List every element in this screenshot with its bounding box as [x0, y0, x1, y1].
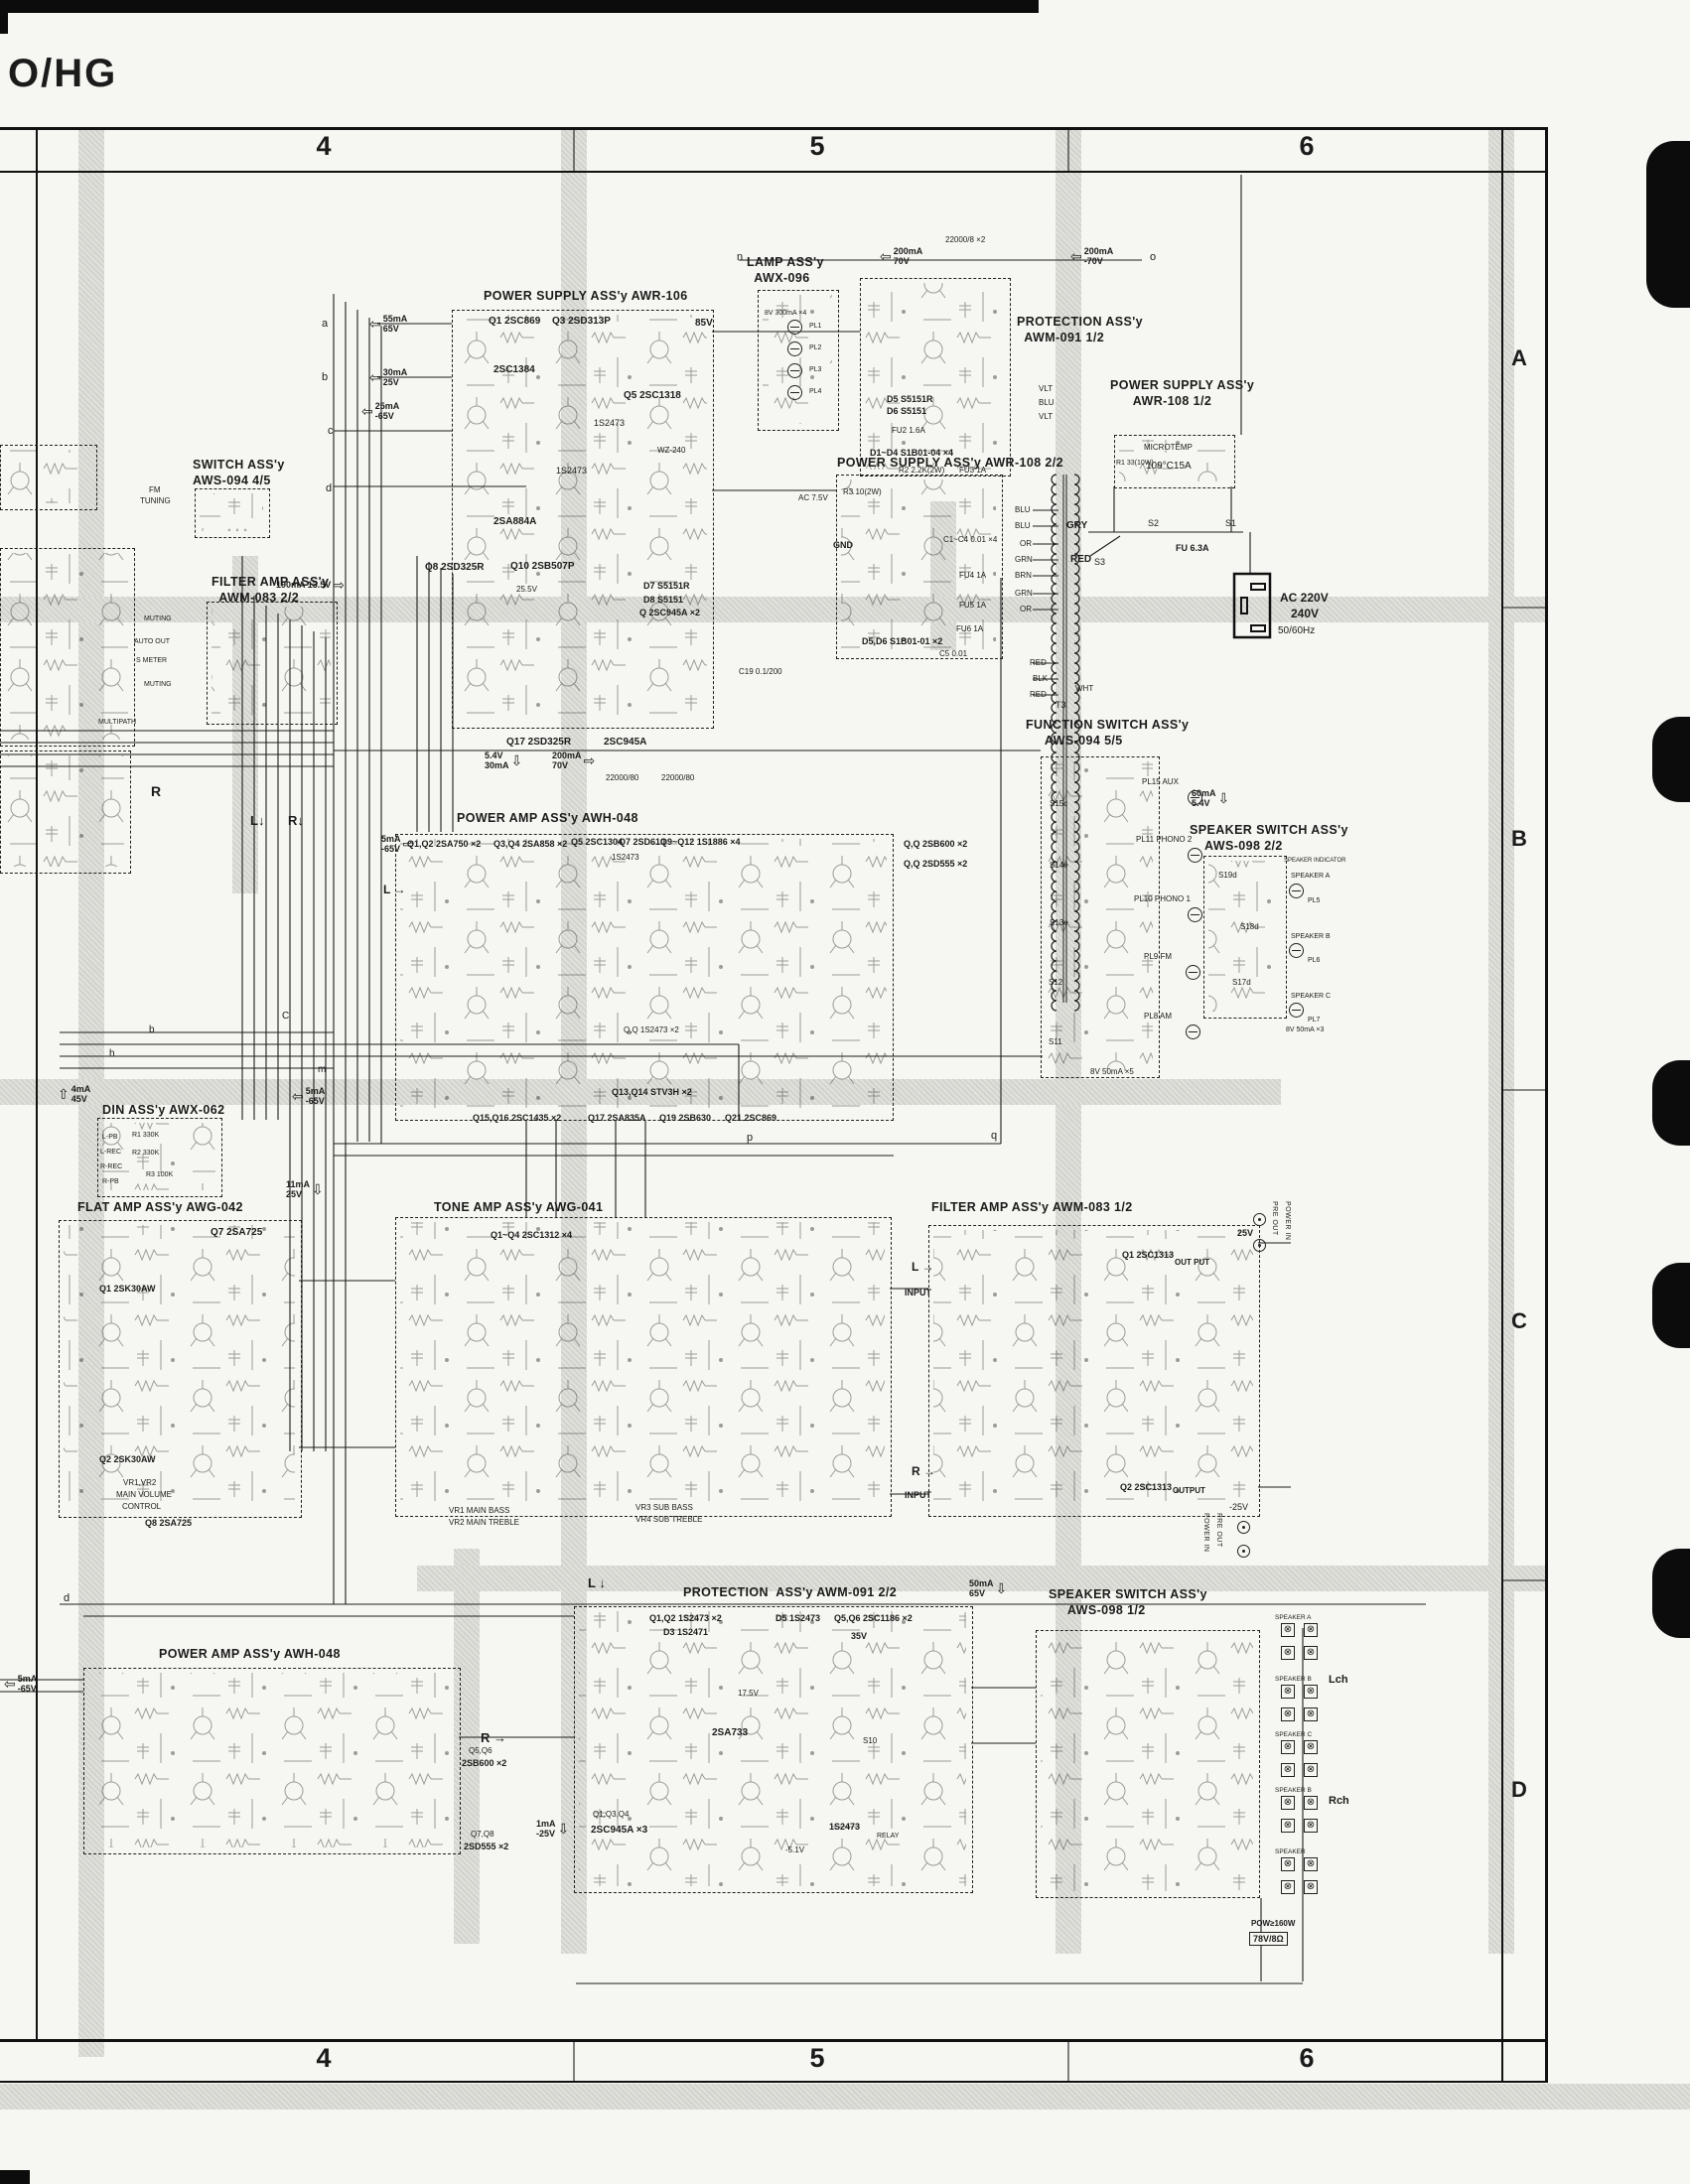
part-label: R3 10(2W) [843, 488, 882, 497]
part-label: FM [149, 486, 161, 495]
grid-column-label-top: 4 [316, 131, 331, 162]
part-label: L↓ [250, 814, 264, 828]
lamp-icon [787, 363, 802, 378]
assembly-block-tone [395, 1217, 892, 1517]
part-label: Q3,Q4 2SA858 ×2 [493, 840, 567, 850]
part-label: S12 [1049, 979, 1062, 988]
lamp-icon [1289, 884, 1304, 898]
lamp-label: PL15 AUX [1142, 778, 1179, 787]
part-label: Q1,Q2 2SA750 ×2 [407, 840, 481, 850]
speaker-terminal-group-label: SPEAKER B [1275, 1787, 1312, 1794]
hollow-arrow-icon: ⇦ [361, 404, 373, 418]
part-label: BLU [1015, 506, 1031, 515]
speaker-terminal-group-label: SPEAKER B [1275, 1676, 1312, 1683]
speaker-terminal-icon: ⊗ [1304, 1763, 1318, 1777]
part-label: 2SD555 ×2 [464, 1843, 508, 1852]
current-arrow: 5.4V30mA⇩ [485, 751, 522, 771]
part-label: Q15,Q16 2SC1435 ×2 [473, 1114, 561, 1124]
part-label: D6 S5151 [887, 407, 926, 417]
hollow-arrow-icon: ⇩ [511, 753, 523, 767]
part-label: S19d [1218, 872, 1237, 881]
assembly-block-prot-bot [574, 1606, 973, 1893]
hollow-arrow-icon: ⇧ [58, 1087, 70, 1101]
part-label: RELAY [877, 1833, 899, 1841]
lamp-icon [1188, 790, 1202, 805]
schematic-page: O/HG 445566ABCDPOWER [0, 0, 1690, 2184]
part-label: R2 2.2K(2W) [899, 467, 944, 476]
part-label: POW≥160W [1251, 1920, 1295, 1929]
part-label: MUTING [144, 615, 172, 623]
assembly-block-filt-l [207, 602, 338, 725]
frame-line [0, 127, 1547, 130]
current-arrow: ⇦55mA65V [369, 314, 407, 335]
grid-column-label-bottom: 5 [809, 2043, 824, 2074]
assembly-title-func: FUNCTION SWITCH ASS'y AWS-094 5/5 [1026, 717, 1189, 750]
part-label: 2SC1384 [493, 364, 535, 375]
part-label: Q,Q 1S2473 ×2 [624, 1026, 679, 1035]
part-label: 1S2473 [594, 419, 625, 429]
part-label: TUNING [140, 497, 171, 506]
part-label: 2SA733 [712, 1727, 748, 1738]
jack-label: POWER IN [1284, 1201, 1291, 1240]
lamp-label: PL9 FM [1144, 953, 1172, 962]
part-label: L → [912, 1261, 933, 1274]
speaker-terminal-icon: ⊗ [1281, 1740, 1295, 1754]
part-label: GND [833, 541, 853, 551]
speaker-terminal-icon: ⊗ [1304, 1740, 1318, 1754]
lamp-icon [1186, 1024, 1200, 1039]
current-arrow-text: 5mA-65V [18, 1674, 38, 1695]
jack-icon [1237, 1521, 1250, 1534]
part-label: BLU [1015, 522, 1031, 531]
part-label: 1S2473 [829, 1823, 860, 1833]
part-label: PL5 [1308, 897, 1320, 905]
part-label: Q13,Q14 STV3H ×2 [612, 1088, 692, 1098]
current-arrow-text: 50mA65V [969, 1578, 994, 1599]
part-label: S14e [1050, 862, 1068, 871]
lamp-label: PL10 PHONO 1 [1134, 895, 1191, 904]
part-label: D5 S5151R [887, 395, 933, 405]
assembly-title-pamp2: POWER AMP ASS'y AWH-048 [159, 1646, 341, 1662]
scan-edge-mark [0, 0, 1039, 13]
part-label: R3 100K [146, 1171, 173, 1179]
speaker-terminal-icon: ⊗ [1304, 1707, 1318, 1721]
part-label: R2 330K [132, 1150, 159, 1158]
part-label: INPUT [905, 1289, 931, 1298]
binding-tab [1646, 141, 1690, 308]
lamp-label: PL2 [809, 344, 821, 352]
hollow-arrow-icon: ⇦ [4, 1677, 16, 1691]
part-label: SPEAKER B [1291, 933, 1331, 941]
jack-icon [1237, 1545, 1250, 1558]
lamp-label: PL4 [809, 388, 821, 396]
part-label: Q8 2SD325R [425, 562, 484, 573]
part-label: 1S2473 [556, 467, 587, 477]
part-label: BRN [1015, 572, 1032, 581]
part-label: Q21 2SC869 [725, 1114, 776, 1124]
part-label: Q17 2SD325R [506, 737, 571, 748]
binding-tab [1652, 1060, 1690, 1146]
part-label: Q10 2SB507P [510, 561, 575, 572]
assembly-block-filt-r [928, 1225, 1260, 1517]
assembly-title-prot-top: PROTECTION ASS'y AWM-091 1/2 [1017, 314, 1143, 346]
assembly-title-spk-top: SPEAKER SWITCH ASS'y AWS-098 2/2 [1190, 822, 1348, 855]
part-label: PL7 [1308, 1017, 1320, 1024]
part-label: FU6 1A [956, 625, 983, 634]
part-label: FU5 1A [959, 602, 986, 611]
part-label: VR3 SUB BASS [635, 1504, 693, 1513]
part-label: Q1 2SC1313 [1122, 1251, 1174, 1261]
scan-edge-mark [0, 0, 8, 34]
assembly-title-pamp: POWER AMP ASS'y AWH-048 [457, 810, 638, 826]
part-label: C19 0.1/200 [739, 668, 782, 677]
part-label: Q8 2SA725 [145, 1519, 192, 1529]
hollow-arrow-icon: ⇨ [333, 578, 345, 592]
part-label: R [151, 784, 161, 799]
part-label: INPUT [905, 1491, 931, 1501]
part-label: C5 0.01 [939, 650, 967, 659]
lamp-icon [1188, 848, 1202, 863]
current-arrow-text: 25mA-65V [375, 401, 400, 422]
part-label: Q3 2SD313P [552, 316, 611, 327]
lamp-label: PL3 [809, 366, 821, 374]
part-label: Lch [1329, 1674, 1348, 1686]
part-label: Q1,Q2 1S2473 ×2 [649, 1614, 722, 1624]
frame-line [0, 171, 1547, 173]
part-label: 22000/8 ×2 [945, 236, 985, 245]
part-label: FU2 1.6A [892, 427, 925, 436]
assembly-title-prot-bot: PROTECTION ASS'y AWM-091 2/2 [683, 1584, 897, 1600]
part-label: R1 33(10W) [1116, 460, 1154, 468]
part-label: Q5 2SC1304 [571, 838, 623, 848]
speaker-terminal-icon: ⊗ [1281, 1685, 1295, 1699]
grid-column-label-top: 5 [809, 131, 824, 162]
part-label: BLU [1039, 399, 1055, 408]
current-arrow: 190mA 13.5V⇨ [276, 578, 345, 592]
lamp-label: PL1 [809, 323, 821, 331]
part-label: 8V 300mA ×4 [765, 310, 806, 318]
part-label: VR1 MAIN BASS [449, 1507, 509, 1516]
hollow-arrow-icon: ⇩ [558, 1822, 570, 1836]
part-label: S11 [1049, 1038, 1062, 1047]
assembly-title-awr106: POWER SUPPLY ASS'y AWR-106 [484, 288, 688, 304]
part-label: 17.5V [738, 1690, 759, 1699]
assembly-block-awr106 [452, 310, 714, 729]
assembly-title-sw094: SWITCH ASS'y AWS-094 4/5 [193, 457, 285, 489]
hollow-arrow-icon: ⇦ [880, 249, 892, 263]
part-label: m [318, 1064, 326, 1075]
part-label: VR4 SUB TREBLE [635, 1516, 702, 1525]
speaker-terminal-group-label: SPEAKER C [1275, 1731, 1312, 1738]
part-label: R-PB [102, 1178, 119, 1186]
part-label: RED [1030, 659, 1047, 668]
part-label: R → [481, 1731, 506, 1745]
jack-icon [1253, 1239, 1266, 1252]
current-arrow: ⇦25mA-65V [361, 401, 399, 422]
part-label: RED [1070, 554, 1091, 565]
part-label: 50/60Hz [1278, 625, 1315, 636]
part-label: OUTPUT [1173, 1487, 1205, 1496]
assembly-title-flat: FLAT AMP ASS'y AWG-042 [77, 1199, 243, 1215]
part-label: AUTO OUT [134, 638, 170, 646]
speaker-terminal-group-label: SPEAKER [1275, 1848, 1306, 1855]
part-label: CONTROL [122, 1503, 161, 1512]
part-label: MAIN VOLUME [116, 1491, 172, 1500]
ac-outlet-icon [1234, 574, 1270, 637]
part-label: D5 1S2473 [775, 1614, 820, 1624]
part-label: Q5,Q6 2SC1186 ×2 [834, 1614, 913, 1624]
jack-icon [1253, 1213, 1266, 1226]
part-label: R → [912, 1465, 935, 1478]
part-label: S2 [1148, 519, 1159, 529]
part-label: n [737, 251, 743, 263]
part-label: Rch [1329, 1795, 1349, 1807]
part-label: Q9~Q12 1S1886 ×4 [660, 838, 741, 848]
part-label: h [109, 1048, 115, 1059]
speaker-terminal-icon: ⊗ [1304, 1685, 1318, 1699]
part-label: 2SC945A ×3 [591, 1825, 647, 1836]
assembly-block-flat [59, 1220, 302, 1518]
part-label: MICROTEMP [1144, 444, 1193, 453]
part-label: PL6 [1308, 957, 1320, 965]
current-arrow-text: 200mA-70V [1084, 246, 1114, 267]
part-label: D3 1S2471 [663, 1628, 708, 1638]
part-label: S17d [1232, 979, 1251, 988]
current-arrow: 1mA-25V⇩ [536, 1819, 569, 1840]
part-label: FU4 1A [959, 572, 986, 581]
lamp-icon [787, 320, 802, 335]
assembly-block-prot-top [860, 278, 1011, 477]
jack-label: PRE OUT [1215, 1513, 1222, 1548]
grid-row-label: D [1511, 1777, 1527, 1803]
speaker-terminal-group-label: SPEAKER A [1275, 1614, 1312, 1621]
grid-row-label: A [1511, 345, 1527, 371]
hollow-arrow-icon: ⇩ [312, 1182, 324, 1196]
current-arrow-text: 190mA 13.5V [276, 580, 331, 590]
speaker-terminal-icon: ⊗ [1281, 1796, 1295, 1810]
part-label: AC 7.5V [798, 494, 828, 503]
hollow-arrow-icon: ⇩ [1218, 791, 1230, 805]
lamp-label: PL11 PHONO 2 [1136, 836, 1192, 845]
part-label: OR [1020, 606, 1032, 614]
part-label: FU3 1A [959, 467, 986, 476]
current-arrow: ⇦5mA-65V [292, 1086, 325, 1107]
binding-tab [1652, 1263, 1690, 1348]
part-label: d [64, 1592, 70, 1604]
speaker-terminal-icon: ⊗ [1281, 1646, 1295, 1660]
current-arrow-text: 200mA70V [552, 751, 582, 771]
part-label: T3 [1056, 701, 1066, 711]
part-label: -25V [1229, 1503, 1248, 1513]
lamp-icon [1289, 943, 1304, 958]
grid-row-label: B [1511, 826, 1527, 852]
part-label: b [149, 1024, 155, 1035]
jack-label: PRE OUT [1271, 1201, 1278, 1236]
part-label: S METER [136, 657, 167, 665]
part-label: S10 [863, 1737, 877, 1746]
part-label: p [747, 1132, 753, 1144]
part-label: Q7 2SD610 [619, 838, 665, 848]
current-arrow: 5mA-65V⇨ [381, 834, 414, 855]
current-arrow: ⇦5mA-65V [4, 1674, 37, 1695]
part-label: S18d [1240, 923, 1259, 932]
part-label: D7 S5151R [643, 582, 690, 592]
frame-line [36, 127, 38, 2041]
part-label: d [326, 482, 332, 494]
part-label: Q7 2SA725 [211, 1227, 262, 1238]
part-label: 2SB600 ×2 [462, 1759, 506, 1769]
hollow-arrow-icon: ⇨ [403, 837, 415, 851]
grid-column-label-top: 6 [1299, 131, 1314, 162]
lamp-icon [787, 385, 802, 400]
current-arrow-text: 5.4V30mA [485, 751, 509, 771]
hollow-arrow-icon: ⇩ [996, 1581, 1008, 1595]
part-label: R-REC [100, 1163, 122, 1171]
part-label: Q2 2SC1313 [1120, 1483, 1172, 1493]
speaker-terminal-icon: ⊗ [1304, 1646, 1318, 1660]
part-label: Q,Q 2SD555 ×2 [904, 860, 967, 870]
current-arrow: 11mA25V⇩ [286, 1179, 324, 1200]
assembly-title-tone: TONE AMP ASS'y AWG-041 [434, 1199, 603, 1215]
part-label: SPEAKER A [1291, 873, 1330, 881]
speaker-terminal-icon: ⊗ [1304, 1623, 1318, 1637]
lamp-label: PL8 AM [1144, 1013, 1172, 1022]
assembly-block-spk-bot [1036, 1630, 1260, 1898]
current-arrow-text: 4mA45V [71, 1084, 91, 1105]
current-arrow-text: 11mA25V [286, 1179, 310, 1200]
part-label: -5.1V [785, 1846, 804, 1855]
speaker-terminal-icon: ⊗ [1281, 1819, 1295, 1833]
part-label: c [328, 425, 334, 437]
part-label: L-PB [102, 1134, 118, 1142]
assembly-block-pamp2 [83, 1668, 461, 1854]
part-label: L-REC [100, 1149, 121, 1157]
part-label: b [322, 371, 328, 383]
grid-column-label-bottom: 4 [316, 2043, 331, 2074]
assembly-block-spk-top [1203, 856, 1287, 1019]
part-label: 2SC945A [604, 737, 646, 748]
current-arrow: 200mA70V⇨ [552, 751, 595, 771]
part-label: 22000/80 [606, 774, 638, 783]
part-label: 25.5V [516, 586, 537, 595]
current-arrow: ⇦200mA-70V [1070, 246, 1113, 267]
part-label: 2SA884A [493, 516, 536, 527]
assembly-title-lamp: LAMP ASS'y AWX-096 [747, 254, 824, 287]
current-arrow-text: 5mA-65V [381, 834, 401, 855]
assembly-block-tuner3 [0, 445, 97, 510]
part-label: q [991, 1130, 997, 1142]
schematic-wire [1090, 536, 1120, 556]
lamp-icon [787, 341, 802, 356]
part-label: Q1,Q3,Q4 [593, 1811, 629, 1820]
binding-tab [1652, 1549, 1690, 1638]
part-label: S1 [1225, 519, 1236, 529]
current-arrow: ⇦200mA70V [880, 246, 922, 267]
part-label: R↓ [288, 814, 304, 828]
grid-row-label: C [1511, 1308, 1527, 1334]
part-label: BLK [1033, 675, 1048, 684]
speaker-terminal-icon: ⊗ [1281, 1857, 1295, 1871]
assembly-block-sw094 [195, 488, 270, 538]
part-label: Q,Q 2SB600 ×2 [904, 840, 967, 850]
speaker-terminal-icon: ⊗ [1304, 1819, 1318, 1833]
hollow-arrow-icon: ⇦ [369, 317, 381, 331]
current-arrow-text: 55mA65V [383, 314, 408, 335]
speaker-terminal-icon: ⊗ [1281, 1623, 1295, 1637]
part-label: Q1 2SK30AW [99, 1285, 156, 1295]
part-label: Q1 2SC869 [489, 316, 540, 327]
power-rating-badge: 78V/8Ω [1249, 1932, 1288, 1946]
part-label: 25V [1237, 1229, 1253, 1239]
hollow-arrow-icon: ⇨ [584, 753, 596, 767]
part-label: Q 2SC945A ×2 [639, 609, 700, 618]
lamp-icon [1289, 1003, 1304, 1018]
part-label: FU 6.3A [1176, 544, 1209, 554]
part-label: 1S2473 [612, 854, 639, 863]
current-arrow-text: 5mA-65V [306, 1086, 326, 1107]
speaker-terminal-icon: ⊗ [1304, 1880, 1318, 1894]
part-label: Q7,Q8 [471, 1831, 494, 1840]
part-label: SPEAKER INDICATOR [1284, 858, 1345, 865]
assembly-title-spk-bot: SPEAKER SWITCH ASS'y AWS-098 1/2 [1049, 1586, 1207, 1619]
hollow-arrow-icon: ⇦ [369, 370, 381, 384]
part-label: D8 S5151 [643, 596, 683, 606]
part-label: 35V [851, 1632, 867, 1642]
speaker-terminal-icon: ⊗ [1281, 1880, 1295, 1894]
jack-label: POWER IN [1202, 1513, 1209, 1552]
speaker-terminal-icon: ⊗ [1304, 1796, 1318, 1810]
assembly-title-din: DIN ASS'y AWX-062 [102, 1102, 224, 1118]
part-label: VLT [1039, 413, 1053, 422]
lamp-icon [1186, 965, 1200, 980]
current-arrow-text: 30mA25V [383, 367, 408, 388]
part-label: Q5,Q6 [469, 1747, 493, 1756]
part-label: 8V 50mA ×3 [1286, 1026, 1324, 1034]
part-label: SPEAKER C [1291, 993, 1331, 1001]
current-arrow-text: 200mA70V [894, 246, 923, 267]
assembly-block-pamp [395, 834, 894, 1121]
part-label: VR1,VR2 [123, 1479, 156, 1488]
part-label: GRN [1015, 556, 1033, 565]
assembly-block-tuner2 [0, 751, 131, 874]
part-label: 8V 50mA ×5 [1090, 1068, 1134, 1077]
frame-line [1545, 127, 1548, 2083]
assembly-block-tuner1 [0, 548, 135, 747]
frame-line [1501, 127, 1503, 2083]
binding-tab [1652, 717, 1690, 802]
part-label: WZ-240 [657, 447, 685, 456]
part-label: VLT [1039, 385, 1053, 394]
hollow-arrow-icon: ⇦ [292, 1089, 304, 1103]
assembly-title-awr108r: POWER SUPPLY ASS'y AWR-108 1/2 [1110, 377, 1254, 410]
current-arrow: ⇦30mA25V [369, 367, 407, 388]
part-label: S13e [1050, 919, 1068, 928]
part-label: GRN [1015, 590, 1033, 599]
current-arrow: 50mA65V⇩ [969, 1578, 1007, 1599]
part-label: L → [383, 884, 405, 896]
part-label: S3 [1094, 558, 1105, 568]
part-label: Q2 2SK30AW [99, 1455, 156, 1465]
grid-column-label-bottom: 6 [1299, 2043, 1314, 2074]
part-label: OUT PUT [1175, 1259, 1209, 1268]
scan-edge-mark [0, 2170, 30, 2184]
part-label: o [1150, 251, 1156, 263]
part-label: Q17 2SA835A [588, 1114, 646, 1124]
part-label: Q5 2SC1318 [624, 390, 681, 401]
part-label: a [322, 318, 328, 330]
part-label: Q19 2SB630 [659, 1114, 711, 1124]
part-label: AC 220V [1280, 592, 1329, 605]
